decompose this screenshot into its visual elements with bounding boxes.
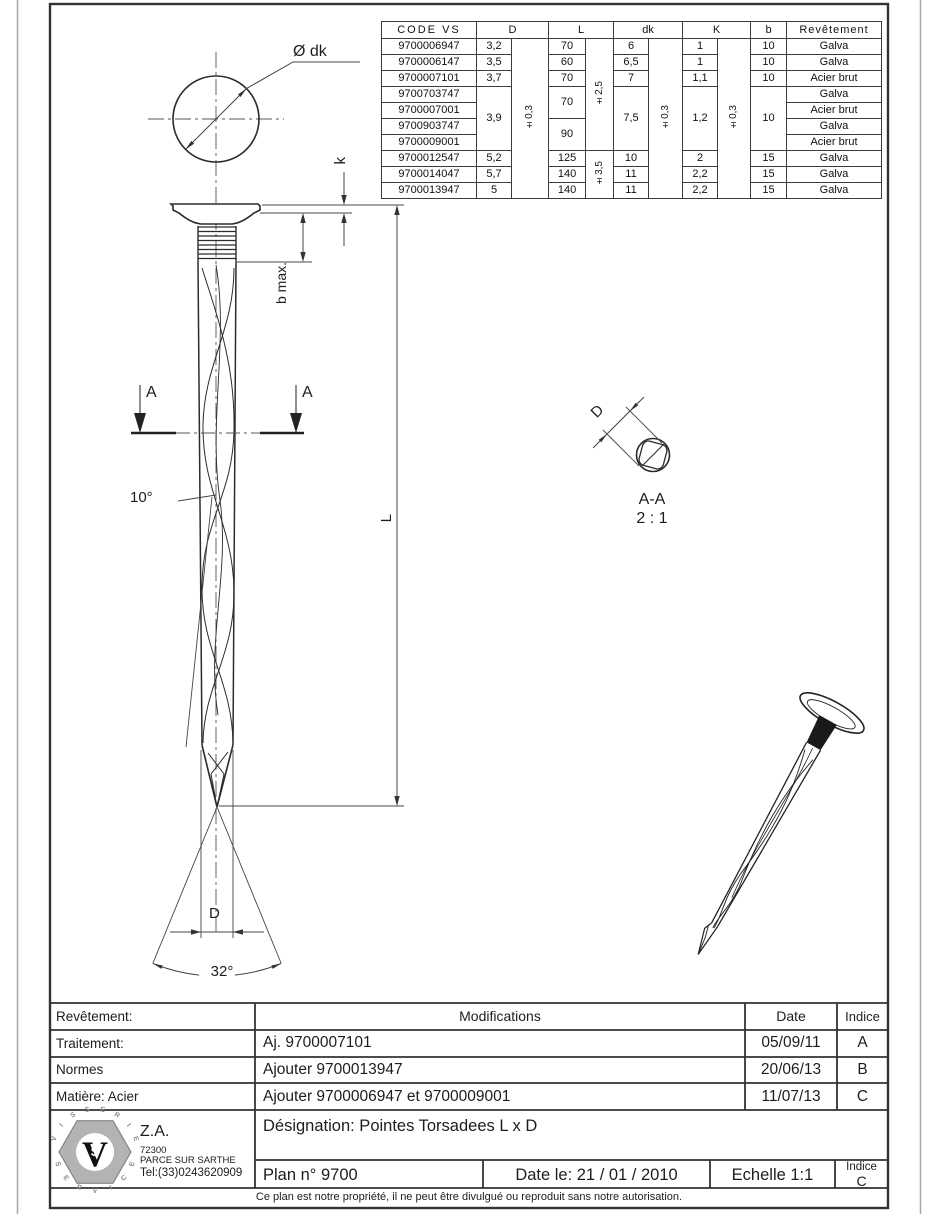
svg-text:S: S: [69, 1111, 77, 1120]
svg-text:C: C: [120, 1174, 129, 1182]
revision-indice: B: [837, 1062, 888, 1078]
cell-code: 9700007101: [382, 71, 477, 87]
col-header-k: K: [683, 22, 751, 39]
tip-angle-label: 32°: [198, 964, 246, 979]
cell-d: 5: [477, 183, 512, 199]
logo-monogram-s: S: [91, 1144, 100, 1159]
cell-k: 1: [683, 39, 718, 55]
plan-date: Date le: 21 / 01 / 2010: [483, 1167, 710, 1184]
length-label: L: [379, 514, 394, 522]
cell-coating: Acier brut: [787, 135, 882, 151]
cell-k: 1: [683, 55, 718, 71]
svg-text:E: E: [131, 1136, 139, 1143]
cell-coating: Galva: [787, 119, 882, 135]
indice-header: Indice: [837, 1010, 888, 1023]
revision-indice: C: [837, 1089, 888, 1105]
nail-side-view: [171, 204, 260, 807]
cell-d: 3,5: [477, 55, 512, 71]
twist-angle-label: 10°: [130, 490, 153, 505]
revision-text: Ajouter 9700006947 et 9700009001: [263, 1089, 510, 1105]
revision-date: 20/06/13: [745, 1062, 837, 1078]
scale: Echelle 1:1: [710, 1167, 835, 1184]
cell-k: 1,1: [683, 71, 718, 87]
cell-dk: 11: [614, 183, 649, 199]
cell-d-tolerance: ±0,3: [512, 39, 549, 199]
revision-text: Ajouter 9700013947: [263, 1062, 403, 1078]
table-row: 9700014047 5,7 140 11 2,2 15 Galva: [382, 167, 882, 183]
svg-text:E: E: [129, 1161, 137, 1168]
cell-code: 9700009001: [382, 135, 477, 151]
cell-l: 125: [549, 151, 586, 167]
dimension-arrows: [153, 195, 400, 969]
drawing-sheet: CODE VS D L dk K b Revêtement 9700006947…: [0, 0, 940, 1214]
col-header-l: L: [549, 22, 614, 39]
svg-text:S: S: [53, 1161, 61, 1168]
col-header-d: D: [477, 22, 549, 39]
section-mark-right: A: [302, 385, 313, 401]
cell-k-tolerance: ±0,3: [718, 39, 751, 199]
cell-dk: 6: [614, 39, 649, 55]
section-title: A-A: [629, 492, 675, 508]
ridge-length-label: b max.: [274, 262, 288, 304]
property-notice: Ce plan est notre propriété, il ne peut …: [50, 1192, 888, 1203]
svg-text:I: I: [125, 1123, 132, 1129]
cell-d: 5,2: [477, 151, 512, 167]
cell-code: 9700903747: [382, 119, 477, 135]
cell-k: 2,2: [683, 167, 718, 183]
cell-code: 9700013947: [382, 183, 477, 199]
cell-d: 5,7: [477, 167, 512, 183]
svg-text:I: I: [58, 1123, 65, 1129]
nail-3d-view: [667, 685, 869, 971]
cell-l: 70: [549, 39, 586, 55]
coating-row-label: Revêtement:: [56, 1010, 133, 1024]
svg-text:R: R: [113, 1111, 121, 1120]
cell-l: 90: [549, 119, 586, 151]
designation: Désignation: Pointes Torsadees L x D: [263, 1118, 537, 1135]
cell-l-tolerance-bottom: ±3,5: [586, 151, 614, 199]
cell-k: 2,2: [683, 183, 718, 199]
tip-diameter-label: D: [209, 906, 220, 921]
cell-code: 9700006947: [382, 39, 477, 55]
svg-text:V: V: [51, 1135, 59, 1142]
cell-d: 3,9: [477, 87, 512, 151]
col-header-code: CODE VS: [382, 22, 477, 39]
cell-b: 15: [751, 183, 787, 199]
svg-text:E: E: [61, 1174, 70, 1182]
head-height-label: k: [333, 157, 348, 165]
section-mark-left: A: [146, 385, 157, 401]
cell-code: 9700007001: [382, 103, 477, 119]
cell-coating: Galva: [787, 39, 882, 55]
cell-b: 10: [751, 71, 787, 87]
cell-l: 140: [549, 167, 586, 183]
date-header: Date: [745, 1009, 837, 1023]
cell-coating: Galva: [787, 55, 882, 71]
table-row: 9700007101 3,7 70 7 1,1 10 Acier brut: [382, 71, 882, 87]
table-row: 9700006947 3,2 ±0,3 70 ±2,5 6 ±0,3 1 ±0,…: [382, 39, 882, 55]
nail-top-view: [173, 62, 360, 162]
cell-coating: Acier brut: [787, 103, 882, 119]
cell-l: 60: [549, 55, 586, 71]
cell-coating: Galva: [787, 183, 882, 199]
material-row-label: Matière: Acier: [56, 1090, 139, 1104]
indice-box-value: C: [835, 1174, 888, 1188]
svg-text:V: V: [93, 1188, 98, 1195]
spec-table: CODE VS D L dk K b Revêtement 9700006947…: [381, 21, 882, 199]
plan-number: Plan n° 9700: [263, 1167, 358, 1184]
head-diameter-label: Ø dk: [293, 44, 327, 60]
cell-d: 3,7: [477, 71, 512, 87]
table-row: 9700703747 3,9 70 7,5 1,2 10 Galva: [382, 87, 882, 103]
cell-dk: 11: [614, 167, 649, 183]
cell-l: 140: [549, 183, 586, 199]
cell-code: 9700006147: [382, 55, 477, 71]
treatment-row-label: Traitement:: [56, 1037, 124, 1051]
revision-date: 11/07/13: [745, 1089, 837, 1105]
cell-k: 1,2: [683, 87, 718, 151]
cell-coating: Galva: [787, 87, 882, 103]
cell-dk: 10: [614, 151, 649, 167]
cell-code: 9700012547: [382, 151, 477, 167]
cell-l-tolerance-top: ±2,5: [586, 39, 614, 151]
table-row: 9700006147 3,5 60 6,5 1 10 Galva: [382, 55, 882, 71]
modifications-header: Modifications: [255, 1009, 745, 1023]
cell-b: 15: [751, 167, 787, 183]
svg-text:E: E: [100, 1106, 106, 1114]
cell-coating: Acier brut: [787, 71, 882, 87]
cell-b: 10: [751, 55, 787, 71]
cell-l: 70: [549, 87, 586, 119]
cell-dk: 7: [614, 71, 649, 87]
revision-text: Aj. 9700007101: [263, 1035, 372, 1051]
cell-code: 9700703747: [382, 87, 477, 103]
company-city: PARCE SUR SARTHE: [140, 1156, 236, 1166]
col-header-b: b: [751, 22, 787, 39]
section-view: [593, 397, 670, 472]
cell-k: 2: [683, 151, 718, 167]
cell-b: 15: [751, 151, 787, 167]
company-za: Z.A.: [140, 1124, 169, 1140]
cell-l: 70: [549, 71, 586, 87]
revision-date: 05/09/11: [745, 1035, 837, 1051]
cell-b: 10: [751, 87, 787, 151]
cell-code: 9700014047: [382, 167, 477, 183]
cell-d: 3,2: [477, 39, 512, 55]
cell-dk-tolerance: ±0,3: [649, 39, 683, 199]
revision-indice: A: [837, 1035, 888, 1051]
section-scale: 2 : 1: [629, 511, 675, 527]
table-row: 9700012547 5,2 125 ±3,5 10 2 15 Galva: [382, 151, 882, 167]
cell-dk: 6,5: [614, 55, 649, 71]
standards-row-label: Normes: [56, 1063, 103, 1077]
col-header-coating: Revêtement: [787, 22, 882, 39]
indice-box-label: Indice: [835, 1162, 888, 1174]
col-header-dk: dk: [614, 22, 683, 39]
cell-b: 10: [751, 39, 787, 55]
cell-coating: Galva: [787, 167, 882, 183]
company-tel: Tel:(33)0243620909: [140, 1168, 242, 1180]
cell-coating: Galva: [787, 151, 882, 167]
cell-dk: 7,5: [614, 87, 649, 151]
table-row: 9700013947 5 140 11 2,2 15 Galva: [382, 183, 882, 199]
